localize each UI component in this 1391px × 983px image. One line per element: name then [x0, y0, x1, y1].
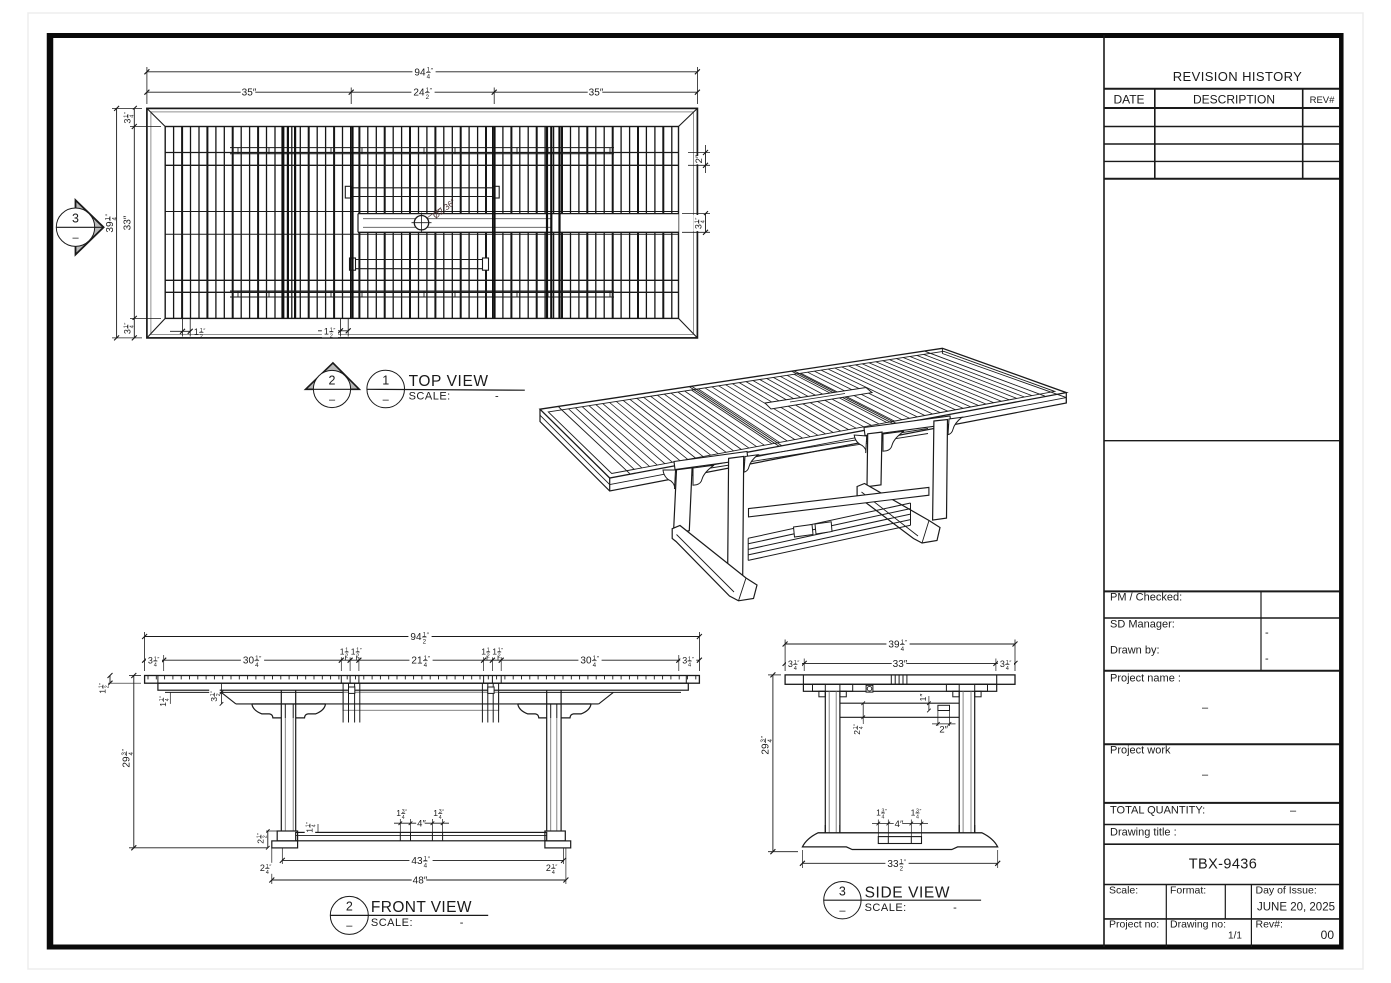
svg-text:4: 4: [402, 815, 405, 821]
svg-text:4: 4: [165, 698, 171, 701]
svg-text:–: –: [1202, 769, 1209, 781]
svg-text:″: ″: [360, 648, 362, 654]
svg-text:94: 94: [410, 632, 422, 643]
svg-text:39: 39: [105, 221, 116, 233]
svg-text:1: 1: [200, 328, 203, 334]
svg-text:″: ″: [124, 323, 130, 325]
svg-text:43: 43: [411, 856, 423, 867]
svg-text:1: 1: [794, 660, 797, 666]
svg-text:4: 4: [688, 663, 691, 669]
svg-text:DESCRIPTION: DESCRIPTION: [1193, 93, 1275, 107]
svg-text:2: 2: [346, 900, 353, 914]
svg-text:4: 4: [794, 666, 797, 672]
svg-text:4″: 4″: [417, 819, 426, 830]
svg-text:–: –: [72, 232, 79, 244]
svg-text:30: 30: [580, 656, 592, 667]
svg-text:-: -: [1265, 627, 1269, 639]
svg-text:-: -: [460, 917, 464, 929]
svg-text:Day of Issue:: Day of Issue:: [1256, 885, 1317, 897]
svg-text:1: 1: [194, 327, 199, 337]
svg-text:94: 94: [414, 67, 426, 78]
svg-text:SCALE:: SCALE:: [371, 917, 413, 929]
svg-text:33″: 33″: [123, 215, 134, 230]
svg-text:1: 1: [330, 327, 333, 333]
svg-text:1: 1: [98, 689, 108, 694]
svg-text:1: 1: [492, 647, 497, 657]
svg-text:1: 1: [433, 808, 438, 818]
svg-text:2″: 2″: [939, 725, 948, 736]
svg-text:1: 1: [351, 647, 356, 657]
svg-text:4: 4: [424, 862, 428, 869]
svg-text:″: ″: [797, 660, 799, 666]
svg-text:35″: 35″: [589, 88, 604, 99]
svg-text:21: 21: [411, 656, 423, 667]
svg-text:FRONT VIEW: FRONT VIEW: [371, 899, 472, 916]
svg-text:″: ″: [501, 648, 503, 654]
svg-text:Project no:: Project no:: [1109, 919, 1159, 931]
svg-text:″: ″: [211, 691, 217, 693]
svg-text:3: 3: [123, 119, 133, 124]
svg-text:2: 2: [260, 863, 265, 873]
svg-text:4: 4: [767, 738, 774, 742]
svg-text:–: –: [1290, 805, 1297, 817]
svg-text:2: 2: [546, 863, 551, 873]
svg-text:″: ″: [99, 683, 105, 685]
svg-text:DATE: DATE: [1113, 93, 1144, 107]
svg-text:1: 1: [1006, 660, 1009, 666]
svg-text:2: 2: [256, 839, 266, 844]
svg-text:″: ″: [692, 657, 694, 663]
svg-text:33: 33: [887, 859, 899, 870]
svg-text:39: 39: [888, 640, 900, 651]
svg-text:4″: 4″: [895, 819, 904, 830]
svg-text:4: 4: [111, 216, 118, 220]
svg-text:″: ″: [306, 822, 312, 824]
svg-text:1: 1: [688, 657, 691, 663]
svg-text:″: ″: [1009, 660, 1011, 666]
svg-text:1: 1: [123, 115, 129, 118]
svg-text:–: –: [839, 905, 846, 917]
svg-text:29: 29: [122, 756, 133, 768]
svg-text:–: –: [329, 394, 336, 406]
svg-text:1: 1: [552, 864, 555, 870]
svg-text:–: –: [383, 394, 390, 406]
svg-text:3: 3: [123, 329, 133, 334]
svg-text:4: 4: [311, 824, 317, 827]
svg-text:Drawn by:: Drawn by:: [1110, 645, 1160, 657]
svg-text:1: 1: [123, 325, 129, 328]
svg-text:″: ″: [405, 810, 407, 816]
svg-text:″: ″: [269, 864, 271, 870]
svg-text:4: 4: [859, 726, 865, 729]
svg-text:2″: 2″: [694, 154, 705, 163]
svg-text:Drawing title :: Drawing title :: [1110, 827, 1177, 839]
svg-text:1″: 1″: [918, 694, 928, 702]
svg-text:2: 2: [200, 334, 203, 340]
svg-text:2: 2: [330, 334, 333, 340]
svg-text:2: 2: [216, 693, 222, 696]
svg-text:1/1: 1/1: [1228, 931, 1242, 942]
svg-text:1: 1: [481, 647, 486, 657]
svg-text:Rev#:: Rev#:: [1256, 919, 1283, 931]
svg-text:4: 4: [701, 220, 707, 223]
svg-text:1: 1: [154, 657, 157, 663]
svg-text:29: 29: [761, 743, 772, 755]
svg-text:4: 4: [1006, 666, 1009, 672]
svg-text:2: 2: [852, 730, 862, 735]
svg-text:1: 1: [340, 647, 345, 657]
svg-text:2: 2: [262, 835, 268, 838]
svg-text:35″: 35″: [242, 88, 257, 99]
svg-text:4: 4: [439, 815, 442, 821]
svg-text:-: -: [953, 902, 957, 914]
svg-text:–: –: [1202, 702, 1209, 714]
svg-text:1: 1: [694, 220, 700, 223]
svg-text:REVISION HISTORY: REVISION HISTORY: [1173, 69, 1302, 84]
svg-text:1: 1: [305, 828, 315, 833]
svg-text:″: ″: [885, 809, 887, 815]
svg-text:″: ″: [442, 810, 444, 816]
svg-text:3: 3: [839, 885, 846, 899]
svg-text:4: 4: [266, 870, 269, 876]
svg-text:SCALE:: SCALE:: [409, 391, 451, 403]
svg-text:-: -: [495, 391, 499, 403]
svg-text:″: ″: [203, 328, 205, 334]
svg-text:TOP VIEW: TOP VIEW: [409, 373, 489, 390]
svg-text:4: 4: [593, 662, 597, 669]
svg-text:″: ″: [257, 833, 263, 835]
svg-text:30: 30: [243, 656, 255, 667]
svg-text:″: ″: [854, 724, 860, 726]
svg-text:REV#: REV#: [1310, 95, 1336, 106]
svg-text:SD Manager:: SD Manager:: [1110, 619, 1175, 631]
svg-text:4: 4: [128, 751, 135, 755]
svg-text:4: 4: [154, 663, 157, 669]
svg-text:″: ″: [695, 218, 701, 220]
svg-text:″: ″: [160, 696, 166, 698]
svg-text:3: 3: [209, 697, 219, 702]
svg-text:48″: 48″: [413, 876, 428, 887]
svg-text:Drawing no:: Drawing no:: [1170, 919, 1226, 931]
svg-text:PM / Checked:: PM / Checked:: [1110, 592, 1182, 604]
svg-text:″: ″: [124, 112, 130, 114]
svg-text:2: 2: [426, 94, 430, 101]
svg-text:4: 4: [130, 115, 136, 118]
svg-text:2: 2: [900, 865, 904, 872]
svg-text:3: 3: [682, 656, 687, 666]
svg-text:1: 1: [382, 374, 389, 388]
svg-text:4: 4: [901, 646, 905, 653]
svg-text:2: 2: [104, 685, 110, 688]
svg-text:1: 1: [266, 864, 269, 870]
svg-text:2: 2: [423, 638, 427, 645]
svg-text:4: 4: [427, 74, 431, 81]
svg-text:″: ″: [555, 864, 557, 870]
svg-text:1: 1: [911, 808, 916, 818]
svg-text:4: 4: [552, 870, 555, 876]
svg-text:″: ″: [920, 809, 922, 815]
svg-text:TOTAL QUANTITY:: TOTAL QUANTITY:: [1110, 805, 1205, 817]
svg-text:2: 2: [329, 374, 336, 388]
svg-text:Project name :: Project name :: [1110, 673, 1181, 685]
svg-text:3: 3: [788, 659, 793, 669]
svg-text:-: -: [1265, 653, 1269, 665]
svg-text:1: 1: [876, 808, 881, 818]
svg-text:Scale:: Scale:: [1109, 885, 1138, 897]
svg-text:SCALE:: SCALE:: [865, 902, 907, 914]
svg-text:33″: 33″: [893, 659, 908, 670]
svg-text:Project work: Project work: [1110, 745, 1171, 757]
svg-text:4: 4: [916, 814, 919, 820]
svg-text:4: 4: [255, 662, 259, 669]
svg-text:3: 3: [148, 656, 153, 666]
svg-text:Format:: Format:: [1170, 885, 1206, 897]
svg-text:3: 3: [1000, 659, 1005, 669]
svg-text:SIDE VIEW: SIDE VIEW: [865, 884, 951, 901]
svg-text:4: 4: [130, 325, 136, 328]
svg-text:TBX-9436: TBX-9436: [1189, 857, 1258, 873]
svg-text:3: 3: [694, 224, 704, 229]
svg-text:1: 1: [158, 702, 168, 707]
svg-text:4: 4: [424, 662, 428, 669]
svg-text:1: 1: [324, 327, 329, 337]
svg-text:″: ″: [157, 657, 159, 663]
svg-text:–: –: [346, 920, 353, 932]
svg-text:JUNE 20, 2025: JUNE 20, 2025: [1257, 902, 1335, 914]
svg-text:4: 4: [882, 814, 885, 820]
svg-text:24: 24: [413, 88, 425, 99]
svg-text:1: 1: [396, 808, 401, 818]
svg-text:00: 00: [1321, 928, 1335, 942]
svg-text:3: 3: [72, 212, 79, 226]
svg-text:″: ″: [333, 328, 335, 334]
